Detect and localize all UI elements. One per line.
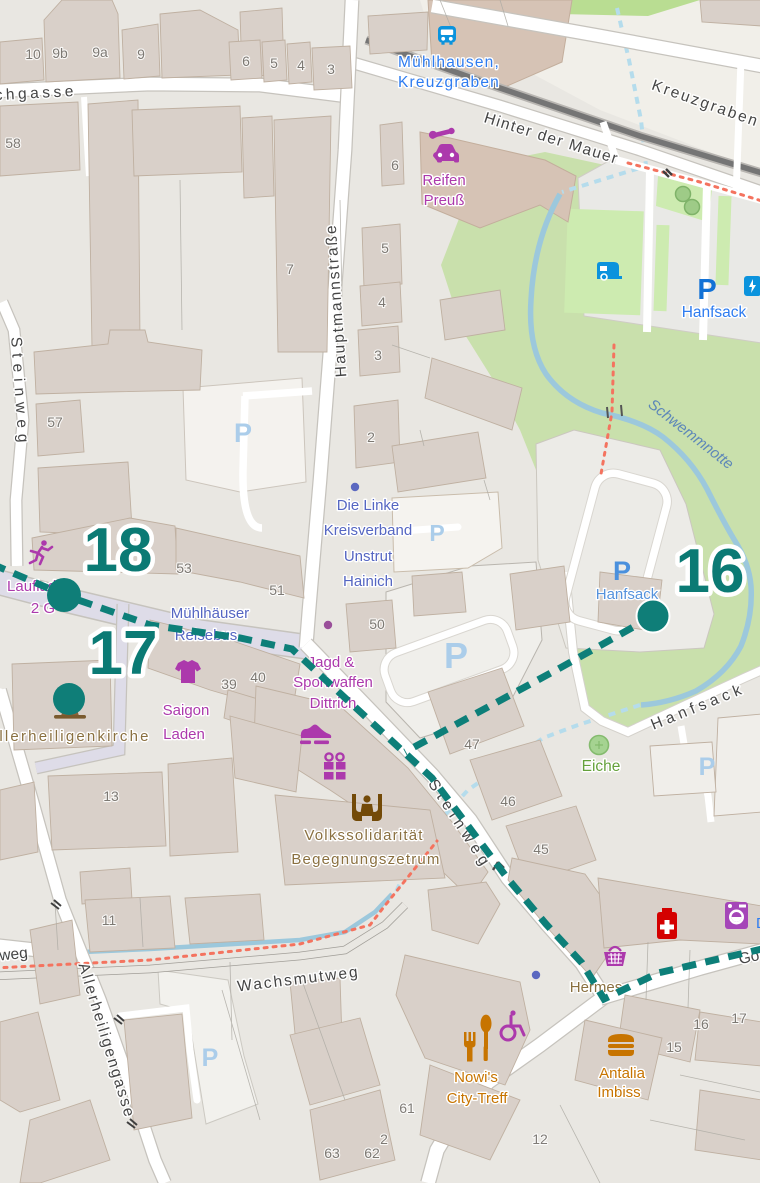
svg-text:16: 16 bbox=[693, 1016, 709, 1032]
svg-text:16: 16 bbox=[676, 537, 745, 606]
svg-text:P: P bbox=[697, 274, 716, 306]
svg-text:3: 3 bbox=[327, 61, 335, 77]
svg-text:Reifen: Reifen bbox=[422, 172, 465, 189]
svg-text:9a: 9a bbox=[92, 44, 108, 60]
svg-text:Nowi's: Nowi's bbox=[454, 1069, 498, 1086]
svg-text:Preuß: Preuß bbox=[424, 192, 465, 209]
svg-text:Volkssolidarität: Volkssolidarität bbox=[304, 827, 423, 844]
svg-text:Mühlhäuser: Mühlhäuser bbox=[171, 605, 249, 622]
svg-text:Begegnungszetrum: Begegnungszetrum bbox=[291, 851, 440, 868]
svg-text:Saigon: Saigon bbox=[163, 702, 210, 719]
svg-text:51: 51 bbox=[269, 582, 285, 598]
svg-text:Imbiss: Imbiss bbox=[597, 1084, 640, 1101]
svg-text:Hanfsack: Hanfsack bbox=[682, 304, 747, 321]
svg-text:P: P bbox=[699, 753, 716, 781]
svg-text:P: P bbox=[429, 520, 444, 546]
svg-text:7: 7 bbox=[286, 261, 294, 277]
svg-text:18: 18 bbox=[84, 516, 153, 585]
svg-text:13: 13 bbox=[103, 788, 119, 804]
svg-text:Kreuzgraben: Kreuzgraben bbox=[398, 74, 500, 91]
svg-text:Laden: Laden bbox=[163, 726, 205, 743]
svg-text:9b: 9b bbox=[52, 45, 68, 61]
svg-text:Mühlhausen,: Mühlhausen, bbox=[398, 54, 500, 71]
svg-text:9: 9 bbox=[137, 46, 145, 62]
svg-text:39: 39 bbox=[221, 676, 237, 692]
svg-text:P: P bbox=[202, 1044, 219, 1072]
svg-text:weg: weg bbox=[0, 945, 29, 965]
svg-text:3: 3 bbox=[374, 347, 382, 363]
svg-text:46: 46 bbox=[500, 793, 516, 809]
svg-text:45: 45 bbox=[533, 841, 549, 857]
svg-text:Hainich: Hainich bbox=[343, 573, 393, 590]
svg-text:4: 4 bbox=[297, 57, 305, 73]
svg-text:D: D bbox=[756, 915, 760, 932]
svg-text:2: 2 bbox=[367, 429, 375, 445]
svg-text:5: 5 bbox=[270, 55, 278, 71]
svg-text:15: 15 bbox=[666, 1039, 682, 1055]
svg-text:P: P bbox=[613, 556, 631, 586]
svg-text:63: 63 bbox=[324, 1145, 340, 1161]
svg-text:12: 12 bbox=[532, 1131, 548, 1147]
svg-text:47: 47 bbox=[464, 736, 480, 752]
svg-text:Unstrut: Unstrut bbox=[344, 548, 393, 565]
svg-text:P: P bbox=[444, 635, 468, 676]
svg-text:6: 6 bbox=[391, 157, 399, 173]
svg-text:10: 10 bbox=[25, 46, 41, 62]
svg-text:62: 62 bbox=[364, 1145, 380, 1161]
svg-text:5: 5 bbox=[381, 240, 389, 256]
svg-text:57: 57 bbox=[47, 414, 63, 430]
svg-text:17: 17 bbox=[731, 1010, 747, 1026]
svg-text:40: 40 bbox=[250, 669, 266, 685]
svg-text:City-Treff: City-Treff bbox=[447, 1090, 509, 1107]
svg-text:P: P bbox=[234, 418, 252, 448]
svg-text:6: 6 bbox=[242, 53, 250, 69]
svg-text:50: 50 bbox=[369, 616, 385, 632]
svg-text:61: 61 bbox=[399, 1100, 415, 1116]
svg-text:11: 11 bbox=[102, 912, 117, 928]
svg-text:4: 4 bbox=[378, 294, 386, 310]
svg-text:Eiche: Eiche bbox=[582, 758, 621, 775]
svg-text:Antalia: Antalia bbox=[599, 1065, 646, 1082]
svg-text:17: 17 bbox=[89, 619, 158, 688]
svg-text:llerheiligenkirche: llerheiligenkirche bbox=[0, 728, 151, 745]
svg-text:53: 53 bbox=[176, 560, 192, 576]
svg-text:Kreisverband: Kreisverband bbox=[324, 522, 412, 539]
svg-text:58: 58 bbox=[5, 135, 21, 151]
svg-text:2: 2 bbox=[380, 1131, 388, 1147]
svg-text:Die Linke: Die Linke bbox=[337, 497, 400, 514]
svg-text:Jagd &: Jagd & bbox=[308, 654, 355, 671]
